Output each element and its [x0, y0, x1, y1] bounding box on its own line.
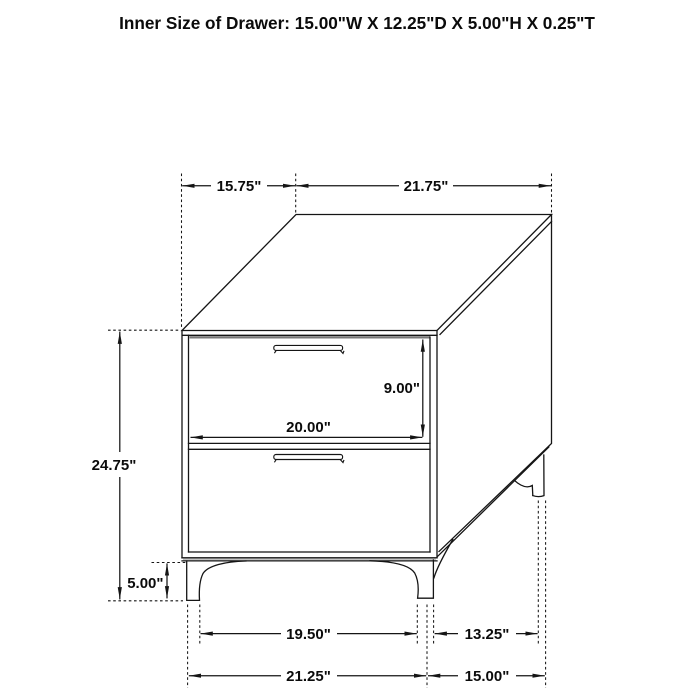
dimension-drawer-width: 20.00": [191, 419, 423, 437]
dimension-side-leg-span: 13.25": [435, 626, 538, 643]
top-face: [182, 215, 552, 331]
dim-label-side-depth-bottom: 15.00": [465, 668, 510, 685]
front-right-leg: [370, 560, 433, 598]
dim-label-front-width-bottom: 21.25": [286, 668, 331, 685]
dimension-side-depth-bottom: 15.00": [428, 668, 545, 685]
drawer-1-handle: [274, 345, 344, 353]
top-face-right-edge: [440, 222, 552, 335]
dim-label-side-leg-span: 13.25": [465, 626, 510, 643]
dimension-drawer-height: 9.00": [384, 340, 423, 437]
drawing-title: Inner Size of Drawer: 15.00"W X 12.25"D …: [119, 13, 595, 33]
dim-label-overall-height: 24.75": [92, 457, 137, 474]
front-left-leg: [187, 561, 246, 600]
dim-label-drawer-width: 20.00": [286, 419, 331, 436]
dim-label-top-depth: 15.75": [217, 178, 262, 195]
side-face: [438, 215, 552, 557]
dimension-front-leg-inner-span: 19.50": [201, 626, 417, 643]
dim-label-drawer-height: 9.00": [384, 380, 420, 397]
dimension-top-depth: 15.75": [182, 178, 295, 195]
dim-label-top-width: 21.75": [404, 178, 449, 195]
nightstand-dimension-page: Inner Size of Drawer: 15.00"W X 12.25"D …: [0, 0, 700, 700]
drawer-2: [189, 449, 431, 552]
top-edge-shading: [190, 336, 431, 338]
nightstand-dimension-drawing: Inner Size of Drawer: 15.00"W X 12.25"D …: [0, 0, 700, 700]
dim-label-leg-height: 5.00": [127, 575, 163, 592]
dimension-top-width: 21.75": [296, 178, 551, 195]
dim-label-front-leg-inner-span: 19.50": [286, 626, 331, 643]
base-rail: [182, 558, 437, 561]
dimension-front-width-bottom: 21.25": [189, 668, 426, 685]
dimension-overall-height: 24.75": [92, 332, 137, 600]
drawer-2-handle: [274, 455, 344, 463]
nightstand-body: [182, 215, 552, 601]
dimension-leg-height: 5.00": [127, 563, 167, 598]
